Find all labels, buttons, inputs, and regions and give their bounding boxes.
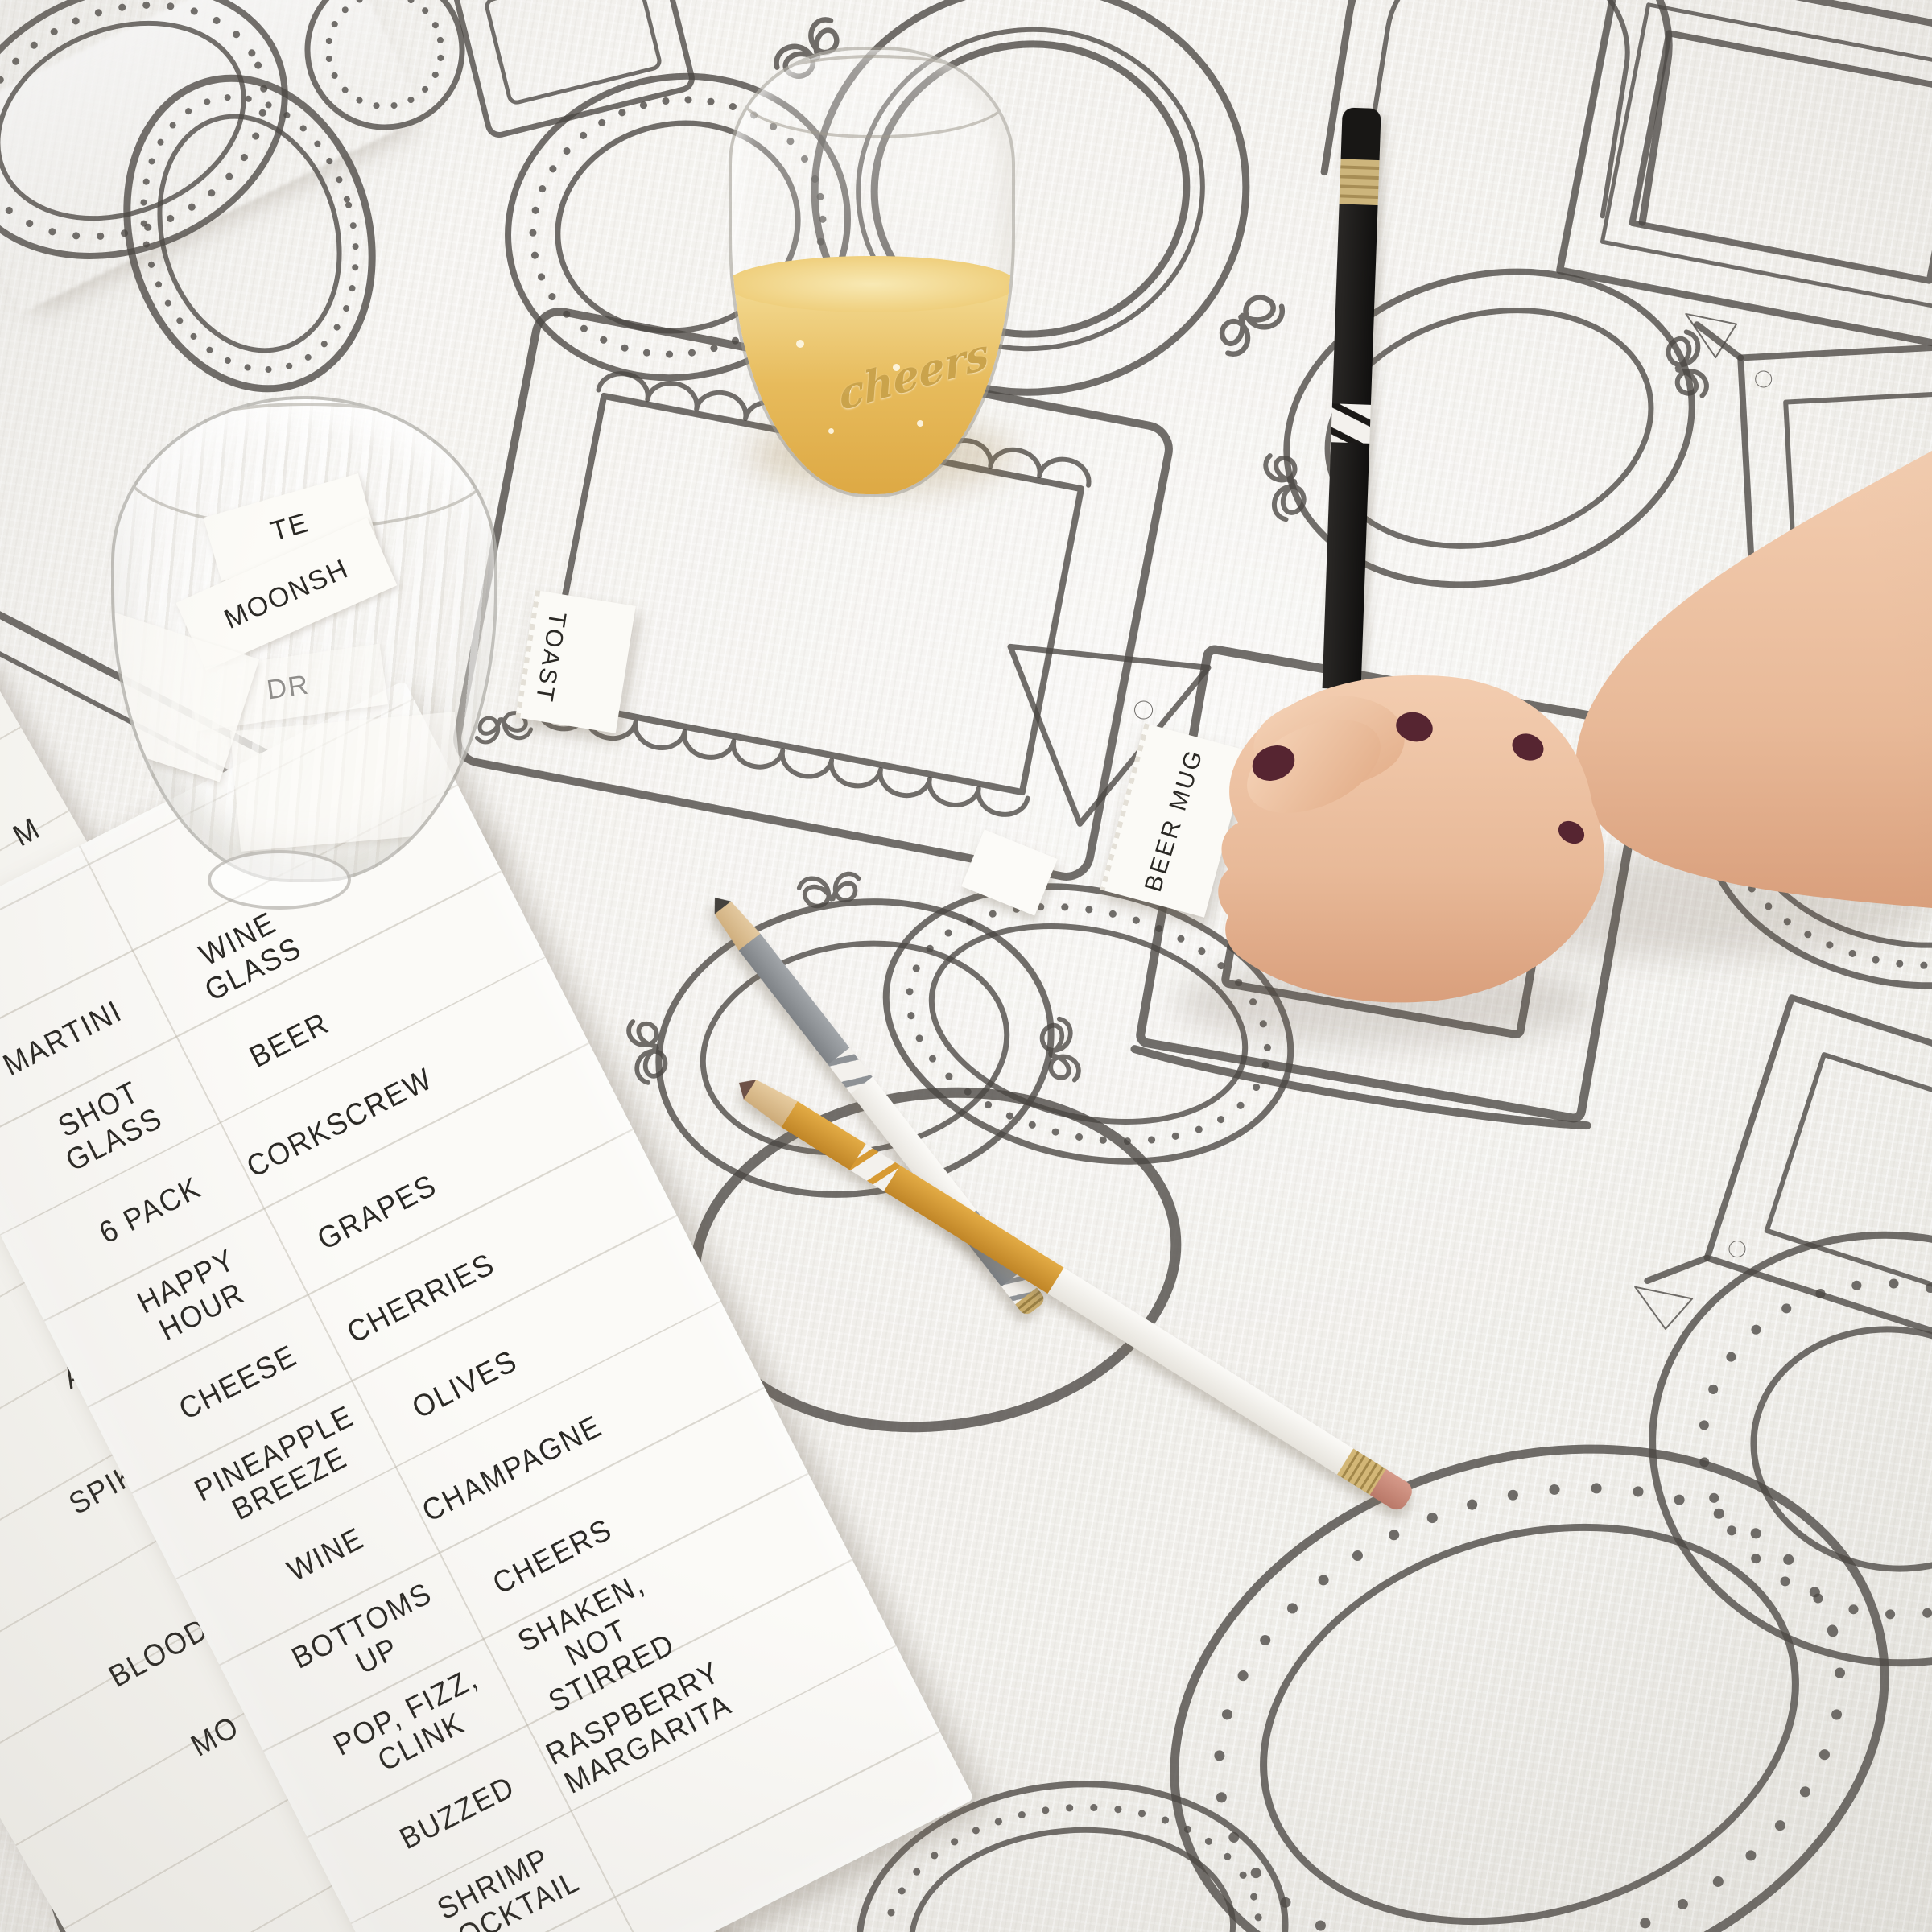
photo-scene: M M AIGHT UP SPIKED BLOODY M MO LE MARTI… [0,0,1932,1932]
vignette [0,0,1932,1932]
